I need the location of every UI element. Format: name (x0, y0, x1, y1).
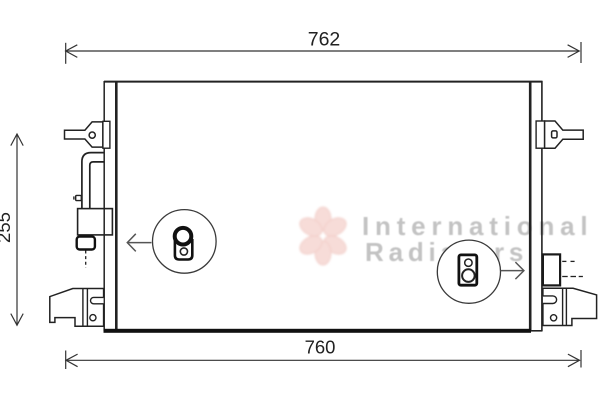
svg-text:255: 255 (0, 212, 14, 243)
svg-text:760: 760 (305, 337, 336, 358)
svg-text:762: 762 (308, 28, 341, 50)
